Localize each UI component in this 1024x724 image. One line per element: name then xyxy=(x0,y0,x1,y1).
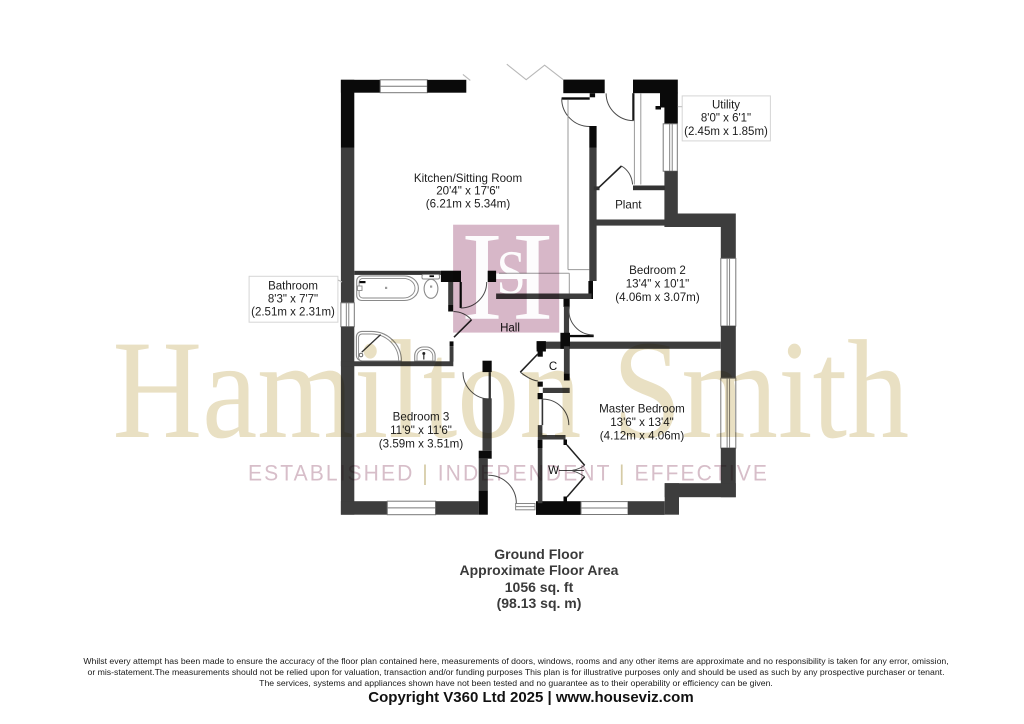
svg-text:S: S xyxy=(497,240,526,308)
